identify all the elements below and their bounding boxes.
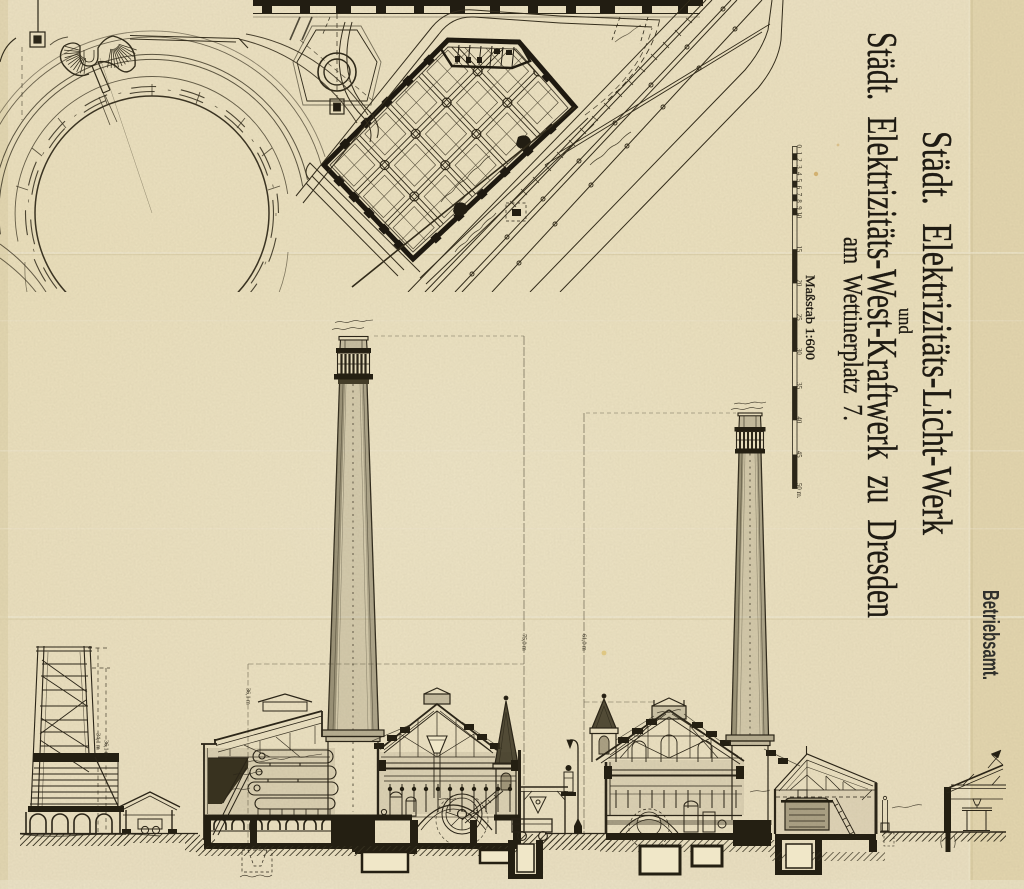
svg-text:35: 35 <box>795 382 802 389</box>
svg-text:3: 3 <box>795 165 802 169</box>
svg-text:36,1 m: 36,1 m <box>245 688 251 705</box>
svg-text:5: 5 <box>795 179 802 183</box>
svg-text:50 m.: 50 m. <box>795 483 802 499</box>
svg-text:34,1 m: 34,1 m <box>95 733 101 750</box>
svg-text:6: 6 <box>795 186 802 190</box>
svg-text:7: 7 <box>795 193 802 197</box>
svg-text:10: 10 <box>795 212 802 219</box>
svg-text:Städt. Elektrizitäts-Licht-Wer: Städt. Elektrizitäts-Licht-Werk <box>913 131 959 535</box>
svg-text:61,0 m: 61,0 m <box>581 634 587 651</box>
svg-text:9: 9 <box>795 206 802 210</box>
svg-text:2: 2 <box>795 158 802 162</box>
svg-text:75,0 m: 75,0 m <box>521 634 527 651</box>
svg-text:0: 0 <box>795 145 802 149</box>
svg-text:Maßstab 1:600: Maßstab 1:600 <box>803 275 817 360</box>
svg-text:4: 4 <box>795 172 802 176</box>
svg-text:am Wettinerplatz 7.: am Wettinerplatz 7. <box>838 237 868 421</box>
svg-text:25: 25 <box>795 314 802 321</box>
svg-text:20: 20 <box>795 280 802 287</box>
svg-text:15: 15 <box>795 246 802 253</box>
svg-text:30: 30 <box>795 348 802 355</box>
svg-text:40: 40 <box>795 417 802 424</box>
svg-text:8: 8 <box>795 199 802 203</box>
svg-text:36,1 m: 36,1 m <box>103 740 109 757</box>
svg-text:1: 1 <box>795 152 802 155</box>
svg-text:Betriebsamt.: Betriebsamt. <box>978 590 1004 680</box>
svg-text:45: 45 <box>795 451 802 458</box>
